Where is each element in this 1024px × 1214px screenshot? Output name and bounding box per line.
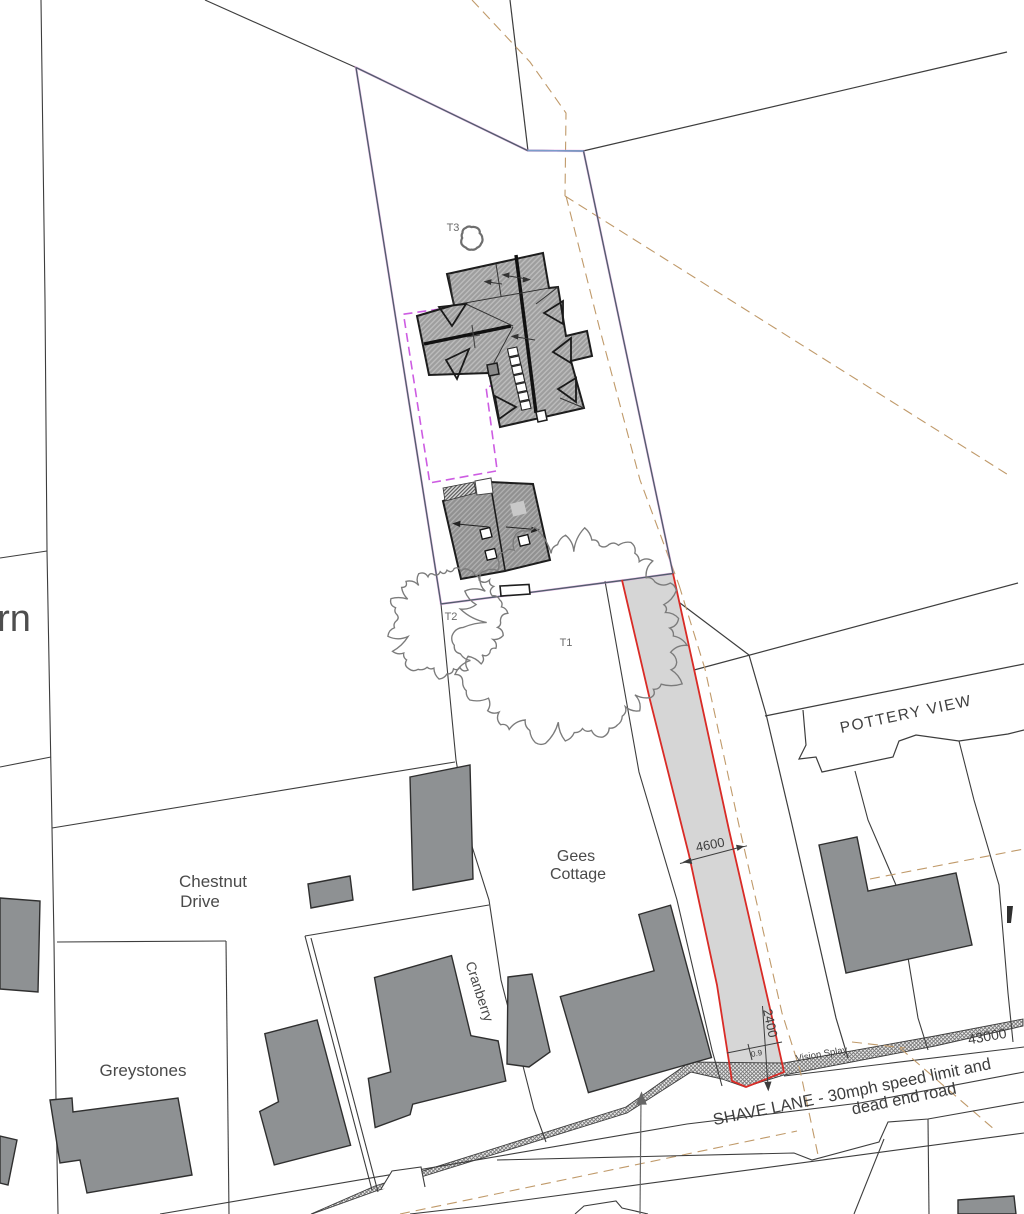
svg-text:T2: T2 <box>445 611 458 623</box>
svg-text:Greystones: Greystones <box>100 1061 187 1080</box>
svg-text:Drive: Drive <box>180 892 220 911</box>
svg-text:Gees: Gees <box>557 848 595 865</box>
svg-text:rn: rn <box>0 598 31 640</box>
svg-text:T1: T1 <box>560 637 573 649</box>
svg-text:Chestnut: Chestnut <box>179 872 247 891</box>
svg-text:Cottage: Cottage <box>550 866 606 883</box>
svg-text:T3: T3 <box>447 222 460 234</box>
